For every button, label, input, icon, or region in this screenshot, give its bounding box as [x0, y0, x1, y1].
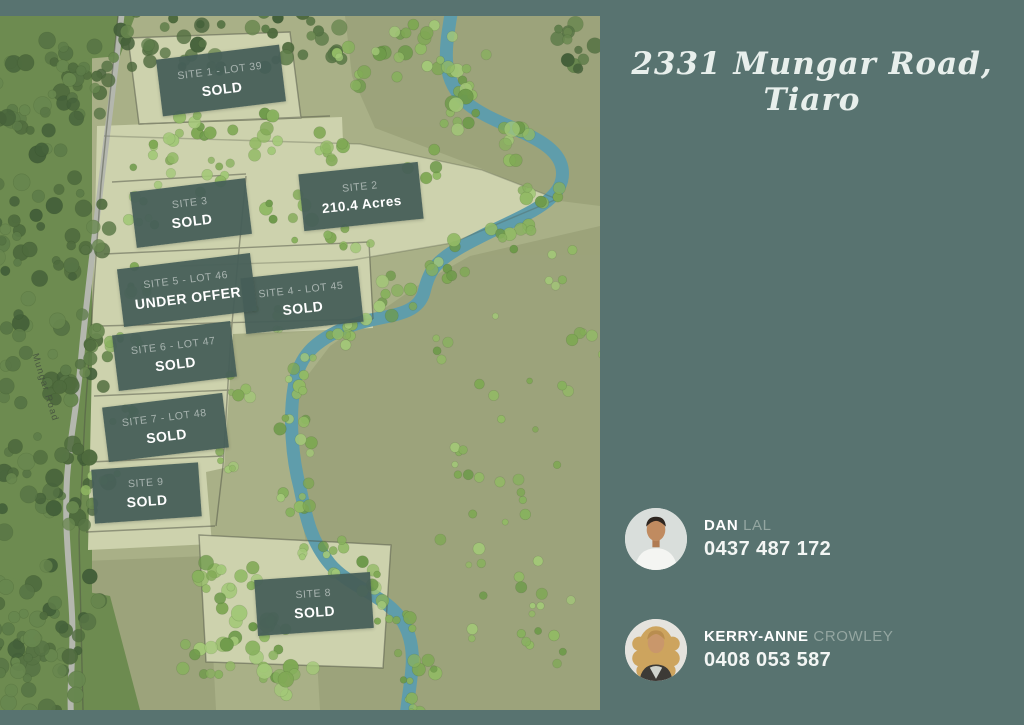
agent-name: KERRY-ANNE CROWLEY — [704, 628, 893, 645]
info-panel: 2331 Mungar Road, Tiaro DAN LAL 0437 487… — [600, 0, 1024, 725]
agent-portrait-female-icon — [625, 619, 687, 681]
site-status: SOLD — [126, 492, 168, 511]
agent-phone: 0437 487 172 — [704, 538, 831, 561]
agent-portrait-male-icon — [625, 508, 687, 570]
site-status: SOLD — [154, 354, 197, 375]
agent-card-dan: DAN LAL 0437 487 172 — [625, 508, 831, 570]
agent-details: KERRY-ANNE CROWLEY 0408 053 587 — [704, 628, 893, 672]
site-name: SITE 1 - LOT 39 — [177, 59, 263, 81]
agent-details: DAN LAL 0437 487 172 — [704, 517, 831, 561]
site-name: SITE 2 — [342, 179, 379, 195]
agent-name: DAN LAL — [704, 517, 831, 534]
site-label-9: SITE 9 SOLD — [91, 462, 202, 523]
site-map: Mungar Road SITE 1 - LOT 39 SOLD SITE 2 … — [0, 16, 600, 710]
agent-photo — [625, 619, 687, 681]
site-name: SITE 9 — [128, 476, 164, 490]
site-status: SOLD — [171, 211, 214, 232]
agent-card-kerry-anne: KERRY-ANNE CROWLEY 0408 053 587 — [625, 619, 893, 681]
property-flyer: Mungar Road SITE 1 - LOT 39 SOLD SITE 2 … — [0, 0, 1024, 725]
property-title: 2331 Mungar Road, Tiaro — [600, 46, 1024, 118]
site-name: SITE 3 — [171, 195, 208, 211]
site-name: SITE 4 - LOT 45 — [258, 280, 344, 301]
site-area: 210.4 Acres — [321, 193, 402, 216]
agent-phone: 0408 053 587 — [704, 649, 893, 672]
site-name: SITE 7 - LOT 48 — [121, 406, 207, 428]
site-name: SITE 6 - LOT 47 — [130, 335, 216, 357]
site-name: SITE 8 — [295, 587, 331, 601]
site-label-8: SITE 8 SOLD — [254, 572, 374, 636]
site-status: SOLD — [145, 425, 188, 446]
site-status: SOLD — [294, 603, 336, 622]
site-status: SOLD — [201, 78, 244, 99]
agent-photo — [625, 508, 687, 570]
site-status: SOLD — [282, 298, 324, 318]
